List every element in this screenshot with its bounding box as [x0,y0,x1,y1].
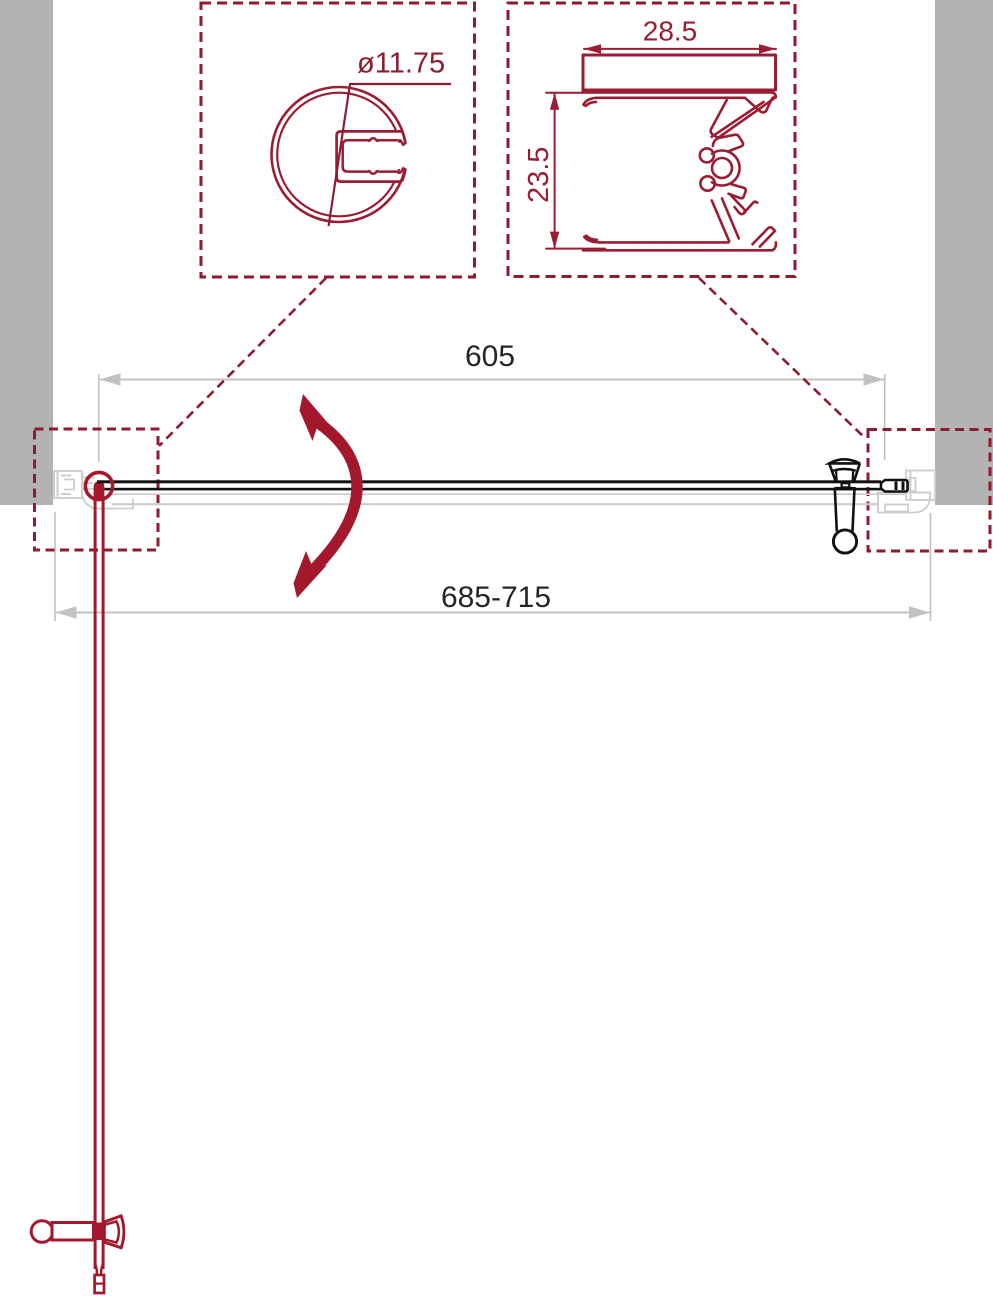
svg-text:ø11.75: ø11.75 [357,48,445,80]
svg-text:685-715: 685-715 [441,581,551,614]
svg-text:23.5: 23.5 [523,147,555,203]
svg-text:28.5: 28.5 [643,16,698,47]
svg-text:605: 605 [465,340,515,373]
